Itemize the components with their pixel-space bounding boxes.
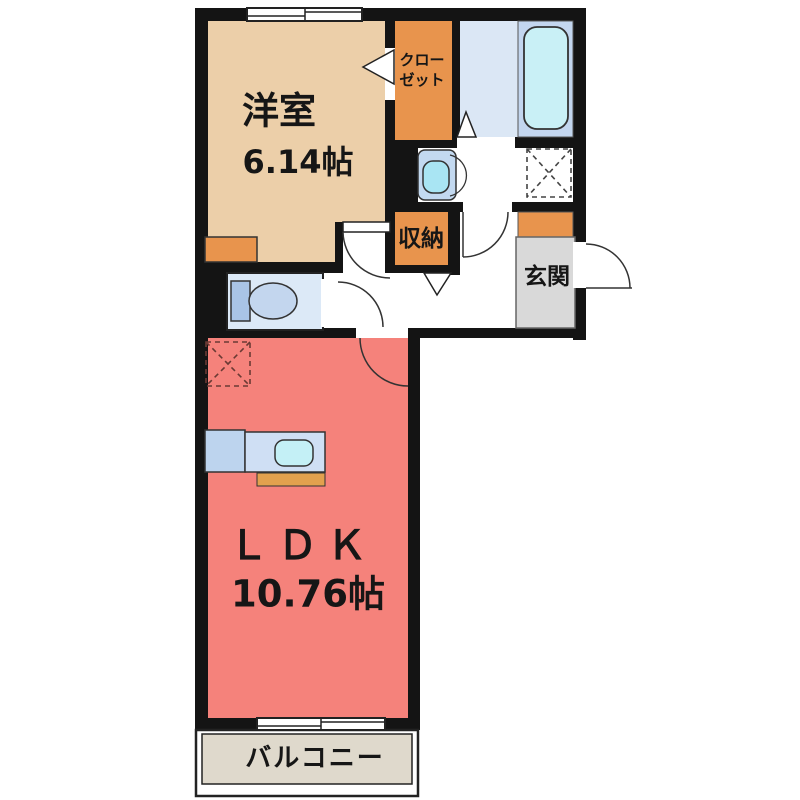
kitchen-counter-left (205, 430, 245, 472)
ldk-area-label: 10.76帖 (231, 576, 385, 615)
closet-label-line1: クロー (399, 50, 444, 70)
bathtub-icon (524, 27, 568, 129)
ldk-label: ＬＤＫ (229, 525, 376, 567)
toilet-door-swing (338, 282, 383, 327)
entrance-door-swing (586, 244, 632, 288)
storage-label: 収納 (398, 227, 444, 251)
bathroom-door-opening (457, 137, 515, 148)
ldk-door-opening (356, 328, 408, 338)
storage-folding-door-icon (424, 273, 451, 295)
closet-label-line2: ゼット (399, 70, 444, 90)
floor-plan-drawing (0, 0, 800, 800)
western-room-door-opening (343, 222, 390, 232)
shoe-cabinet (518, 212, 573, 237)
washing-machine-space-icon (527, 149, 571, 197)
balcony-sliding-door (257, 718, 385, 730)
toilet-door-opening (321, 279, 343, 327)
kitchen-base-bar (257, 473, 325, 486)
western-room-window (247, 8, 362, 21)
toilet-tank-icon (231, 281, 250, 321)
entrance-label: 玄関 (524, 265, 570, 289)
western-room-cabinet (205, 237, 257, 262)
closet-label: クロー ゼット (399, 50, 444, 90)
washbasin-bowl-icon (423, 161, 449, 193)
floor-plan: 洋室 6.14帖 クロー ゼット 収納 玄関 ＬＤＫ 10.76帖 バルコニー (0, 0, 800, 800)
washroom-door-opening (463, 202, 512, 212)
western-room-door-swing (343, 232, 390, 278)
balcony-label: バルコニー (245, 745, 384, 772)
western-room-label: 洋室 (242, 93, 316, 132)
entrance-door-opening (573, 242, 586, 288)
western-room-area-label: 6.14帖 (243, 146, 354, 180)
washroom-door-swing (463, 212, 508, 257)
toilet-bowl-icon (249, 283, 297, 319)
kitchen-sink-icon (275, 440, 313, 466)
